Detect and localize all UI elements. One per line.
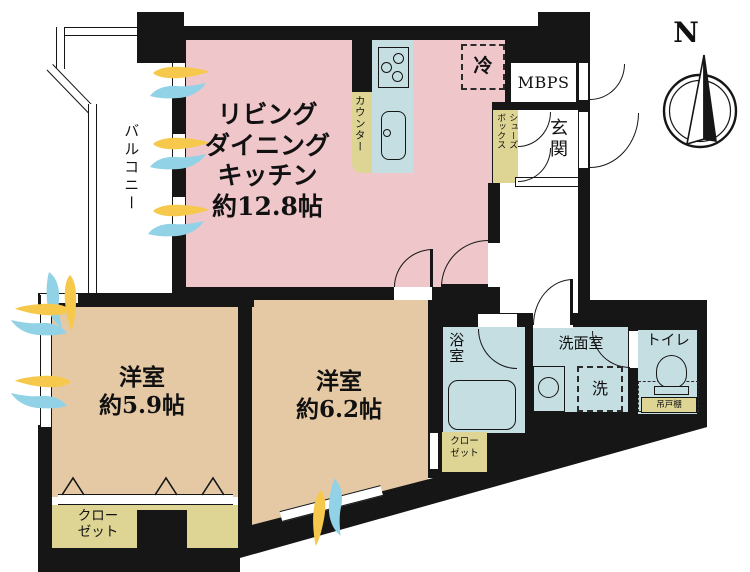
wall-corridor-west-upper [488, 183, 500, 243]
breeze-yellow-icon [14, 302, 72, 318]
compass-icon [652, 52, 748, 156]
wall-under-mbps [493, 102, 590, 110]
toilet-label: トイレ [638, 333, 698, 351]
closet1-fold-mark-3 [200, 475, 226, 497]
closet1-label: クロー ゼット [58, 508, 138, 541]
compass-north-label: N [664, 16, 708, 50]
closet2-label: クロー ゼット [442, 436, 487, 459]
fridge-label: 冷 [461, 44, 505, 90]
breeze-cyan-icon [10, 320, 68, 336]
closet1-fold-mark-2 [153, 475, 179, 497]
door-gap-toilet [629, 331, 638, 368]
mbps-door-leaf [578, 62, 589, 101]
closet2-opening [429, 433, 439, 469]
toilet-tank [654, 386, 689, 395]
kitchen-wall-stub [352, 40, 372, 92]
shoebox-label: シューズ ボックス [494, 113, 518, 149]
washroom-label: 洗面室 [534, 334, 628, 352]
bath-label: 浴室 [447, 332, 465, 364]
counter-label: カウンター [353, 95, 366, 153]
closet1-pillar [137, 510, 187, 548]
balcony-railing-left-upper [56, 27, 65, 69]
stove-burner-3 [392, 71, 403, 82]
wall-west-lower [38, 425, 52, 548]
breeze-cyan-icon [149, 83, 207, 99]
floor-plan: リビング ダイニング キッチン 約12.8帖 バルコニー カウンター 冷 MBP… [0, 0, 750, 572]
breeze-cyan-icon [147, 221, 205, 237]
mbps-door-arc [590, 64, 625, 100]
entrance-door-leaf [578, 111, 589, 169]
washer-label: 洗 [577, 366, 623, 412]
kitchen-faucet [383, 129, 391, 137]
mbps-label: MBPS [511, 63, 576, 102]
breeze-yellow-icon [152, 65, 210, 81]
toilet-bowl [656, 355, 687, 388]
closet1-fold-mark-1 [60, 475, 86, 497]
balcony-label: バルコニー [122, 123, 140, 213]
bedroom2-label: 洋室 約6.2帖 [253, 368, 425, 424]
door-leaf-living-bedroom2 [430, 249, 433, 287]
door-leaf-corridor-washroom [570, 279, 573, 325]
entrance-door-arc [590, 113, 639, 168]
door-gap-bath [478, 314, 517, 327]
bathtub [448, 380, 516, 430]
balcony-railing-top [56, 27, 138, 36]
bedroom1-label: 洋室 約5.9帖 [58, 364, 226, 420]
wall-bottom [38, 548, 240, 572]
door-gap-living-bedroom2 [394, 287, 432, 300]
washroom-basin [538, 377, 559, 398]
balcony-railing-left-lower [88, 104, 97, 298]
stove-burner-1 [393, 53, 404, 64]
stove-burner-2 [381, 62, 392, 73]
ldk-label: リビング ダイニング キッチン 約12.8帖 [175, 100, 360, 222]
wall-living-bottom-a [184, 287, 394, 300]
toilet-cupboard-label: 吊戸棚 [641, 397, 697, 413]
door-leaf-living-corridor [441, 284, 488, 287]
entrance-label: 玄関 [546, 118, 568, 160]
wall-top [170, 26, 550, 40]
door-gap-living-corridor [488, 243, 500, 287]
